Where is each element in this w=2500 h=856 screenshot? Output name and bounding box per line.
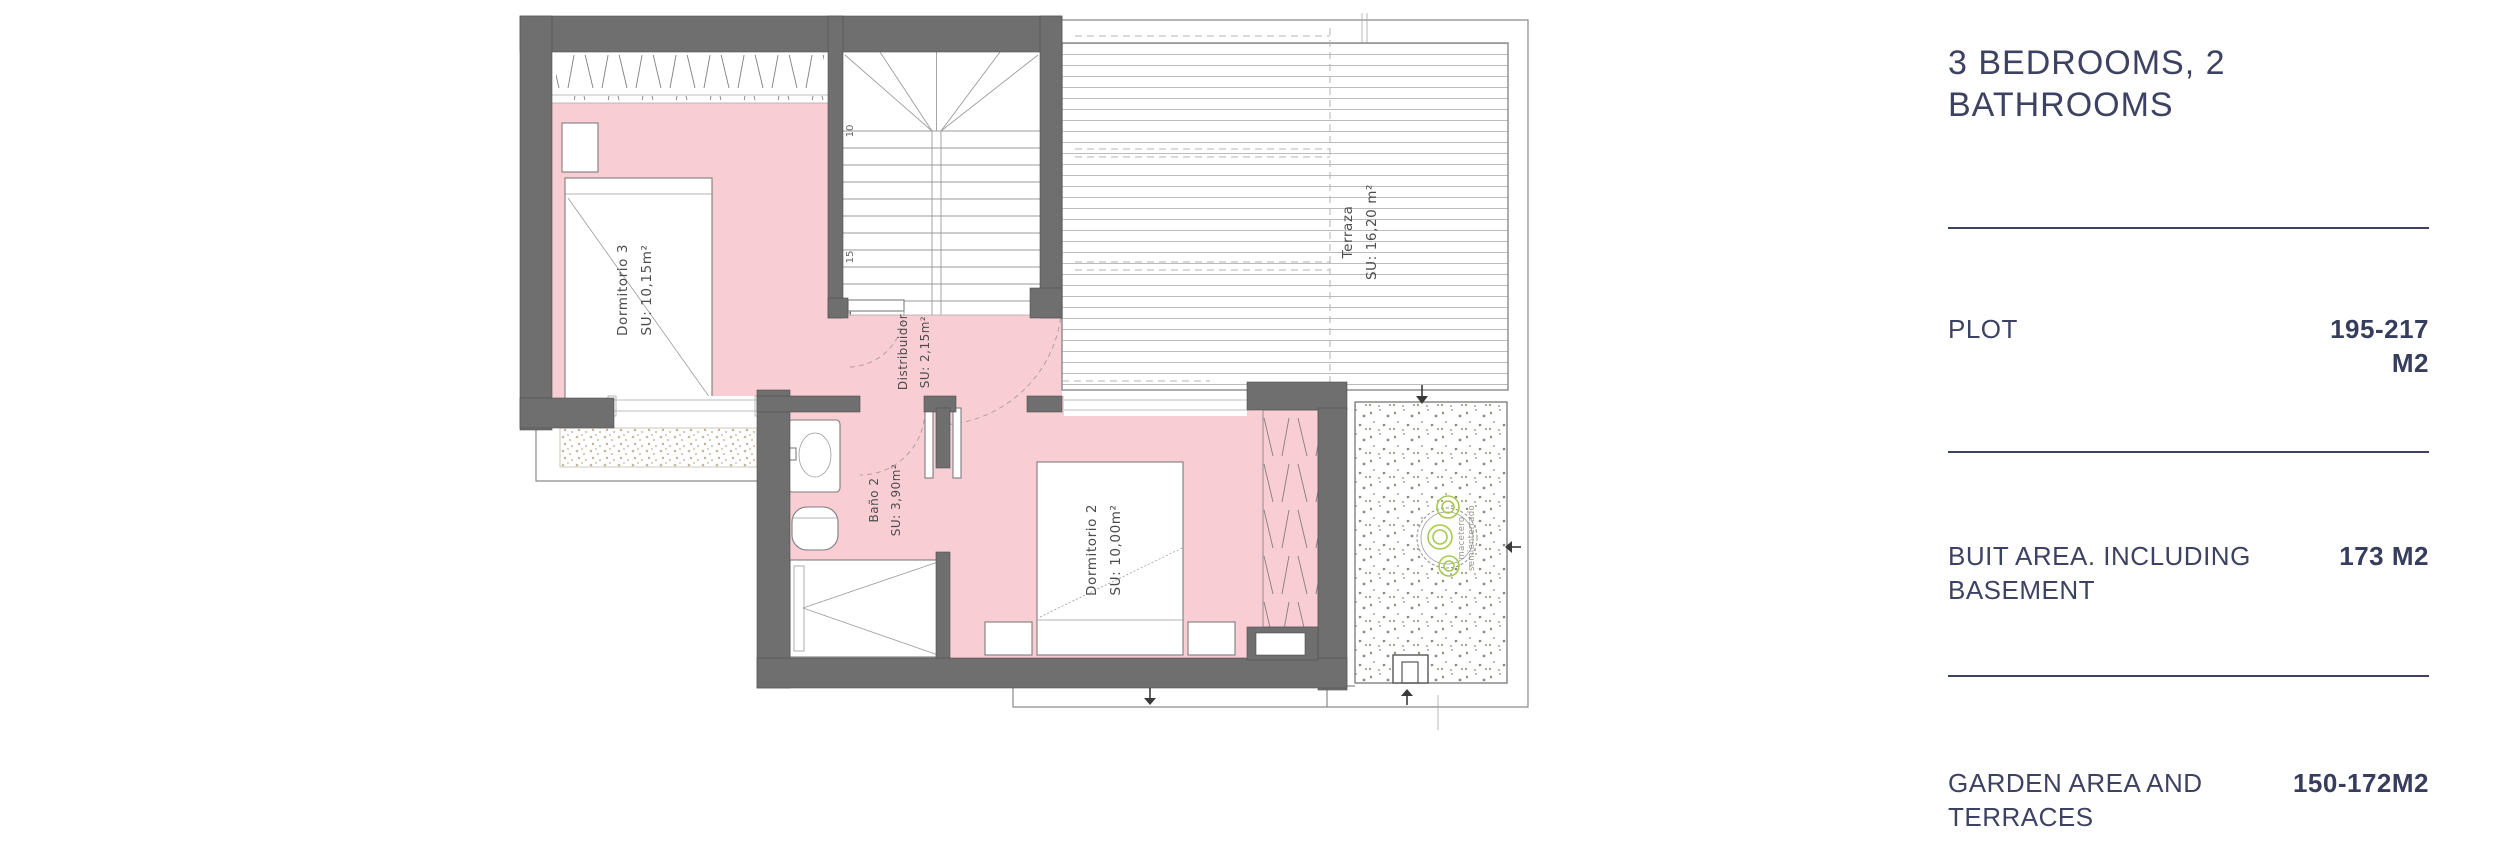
door-leaf-stairs [848, 300, 904, 311]
dormitorio2-area: SU: 10,00m² [1108, 504, 1124, 595]
nightstand-d3 [562, 123, 598, 172]
dormitorio2-name: Dormitorio 2 [1084, 504, 1100, 596]
stairs: 10 15 17 [843, 52, 1040, 316]
plot-label: PLOT [1948, 312, 2168, 380]
divider-1 [1948, 227, 2429, 229]
divider-2 [1948, 451, 2429, 453]
wall-d2-topright [1247, 382, 1347, 410]
wall-d3-bottom [520, 398, 614, 428]
built-area-value: 173 M2 [2289, 539, 2429, 607]
stair-number-10: 10 [845, 125, 856, 138]
shower [790, 560, 938, 657]
garden: macetero semienterrado [1355, 402, 1507, 683]
garden-area-label: GARDEN AREA AND TERRACES [1948, 766, 2259, 834]
wall-partition-stub [936, 408, 950, 468]
wall-stairs-right [1040, 16, 1062, 318]
distribuidor-area: SU: 2,15m² [918, 316, 932, 388]
window-dormitorio2-terrace [1064, 396, 1247, 416]
nightstand-d2-left [985, 622, 1032, 655]
brochure-page: Terraza SU: 16,20 m² 10 15 17 [0, 0, 2500, 856]
terrace-deck [1062, 43, 1508, 390]
planter-note-line2: semienterrado [1467, 505, 1477, 571]
built-area-label: BUIT AREA. INCLUDING BASEMENT [1948, 539, 2278, 607]
door-leaf-right [953, 408, 961, 478]
spec-row-plot: PLOT 195-217 M2 [1948, 312, 2429, 380]
distribuidor-name: Distribuidor [896, 314, 910, 390]
terraza-area: SU: 16,20 m² [1364, 184, 1380, 280]
arrow-up-strip [1401, 689, 1413, 705]
divider-3 [1948, 675, 2429, 677]
sink [786, 420, 840, 492]
wall-bath-top [757, 396, 860, 412]
spec-row-built-area: BUIT AREA. INCLUDING BASEMENT 173 M2 [1948, 539, 2429, 607]
floor-plan: Terraza SU: 16,20 m² 10 15 17 [0, 0, 2500, 856]
page-title: 3 BEDROOMS, 2 BATHROOMS [1948, 42, 2388, 126]
plot-value: 195-217 M2 [2299, 312, 2429, 380]
nightstand-d2-right [1188, 622, 1235, 655]
front-planter-strip [536, 425, 787, 481]
garden-area-value: 150-172M2 [2259, 766, 2429, 834]
wall-bottom [757, 658, 1347, 688]
dormitorio3-area: SU: 10,15m² [639, 244, 655, 335]
wall-partition-bottom [936, 552, 950, 662]
wall-left [520, 16, 552, 430]
dormitorio3-name: Dormitorio 3 [615, 244, 631, 336]
nook-inset [1256, 633, 1305, 655]
wall-pillar-stair-l [828, 298, 848, 318]
wall-top [520, 16, 1062, 52]
bano2-name: Baño 2 [867, 478, 881, 523]
stair-number-15: 15 [845, 251, 856, 264]
wall-pillar-stair-r [1030, 288, 1062, 318]
wall-d2-door-pillar [1027, 396, 1062, 412]
terraza-name: Terraza [1340, 206, 1356, 260]
bano2-area: SU: 3,90m² [889, 464, 903, 536]
wardrobe-dormitorio3 [552, 52, 828, 103]
garden-gate [1393, 655, 1428, 683]
wall-east [1318, 408, 1347, 690]
wardrobe-dormitorio2 [1263, 410, 1318, 627]
terrace: Terraza SU: 16,20 m² [1062, 28, 1508, 390]
spec-row-garden-area: GARDEN AREA AND TERRACES 150-172M2 [1948, 766, 2429, 834]
door-leaf-left [925, 408, 933, 478]
wall-stairs-left [828, 16, 843, 318]
arrow-down-strip [1144, 688, 1156, 705]
wall-bath-west [757, 390, 790, 688]
planter-note-line1: macetero [1457, 517, 1467, 560]
toilet [792, 507, 838, 550]
window-dormitorio3 [608, 396, 763, 416]
